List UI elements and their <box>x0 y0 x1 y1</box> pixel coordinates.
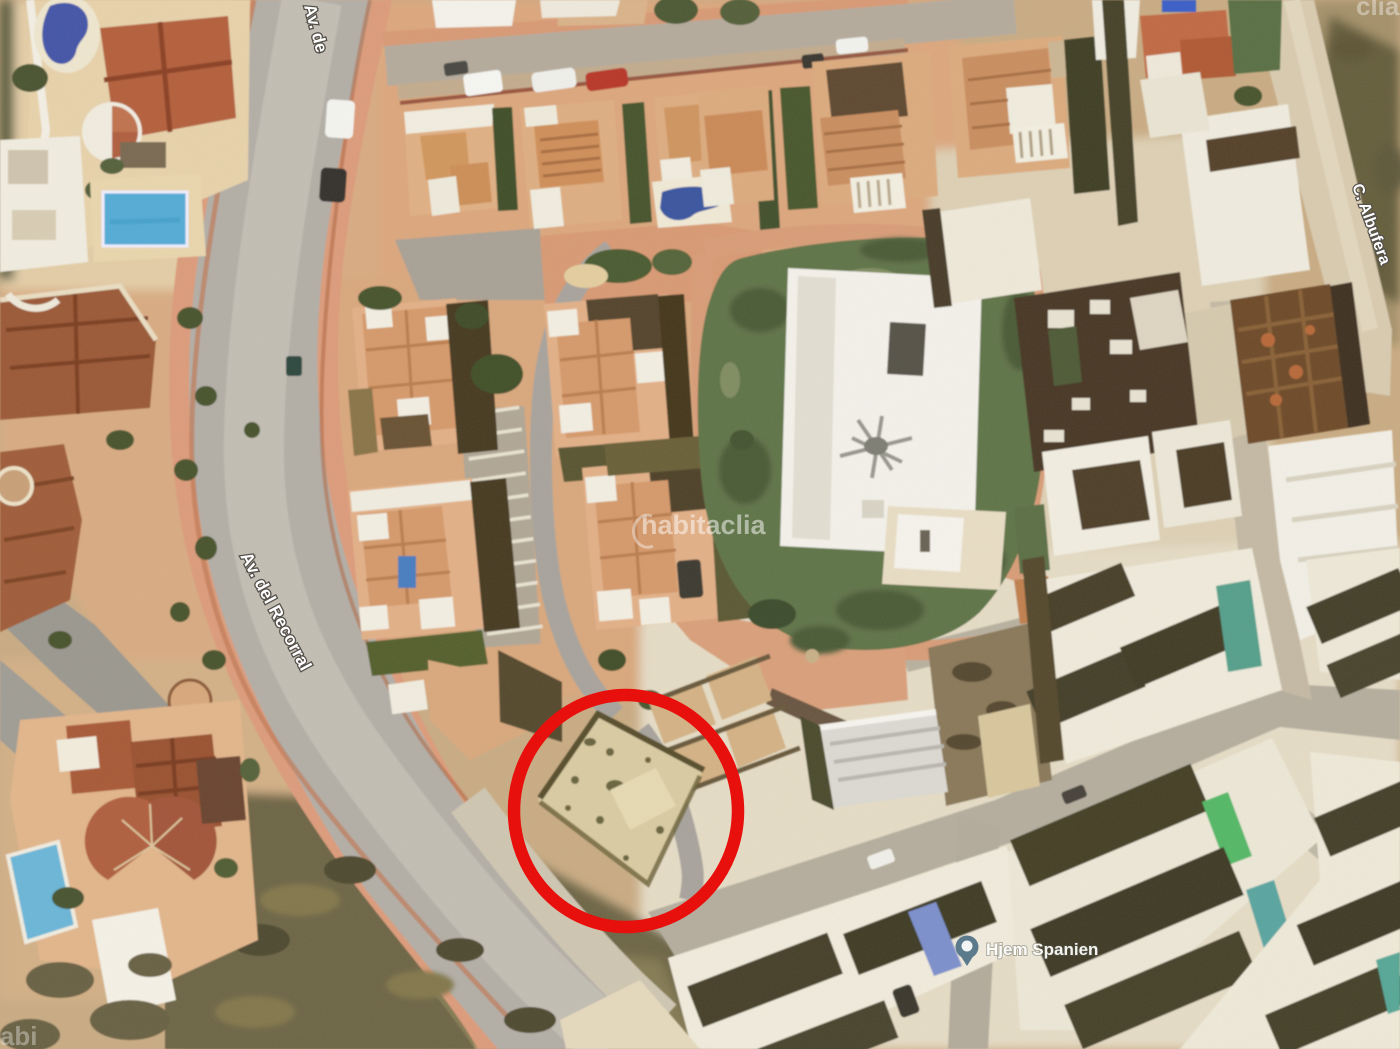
svg-text:Hjem Spanien: Hjem Spanien <box>986 940 1098 959</box>
svg-text:habi: habi <box>0 1021 37 1049</box>
svg-text:habitaclia: habitaclia <box>641 510 767 540</box>
svg-text:clia: clia <box>1356 0 1400 21</box>
